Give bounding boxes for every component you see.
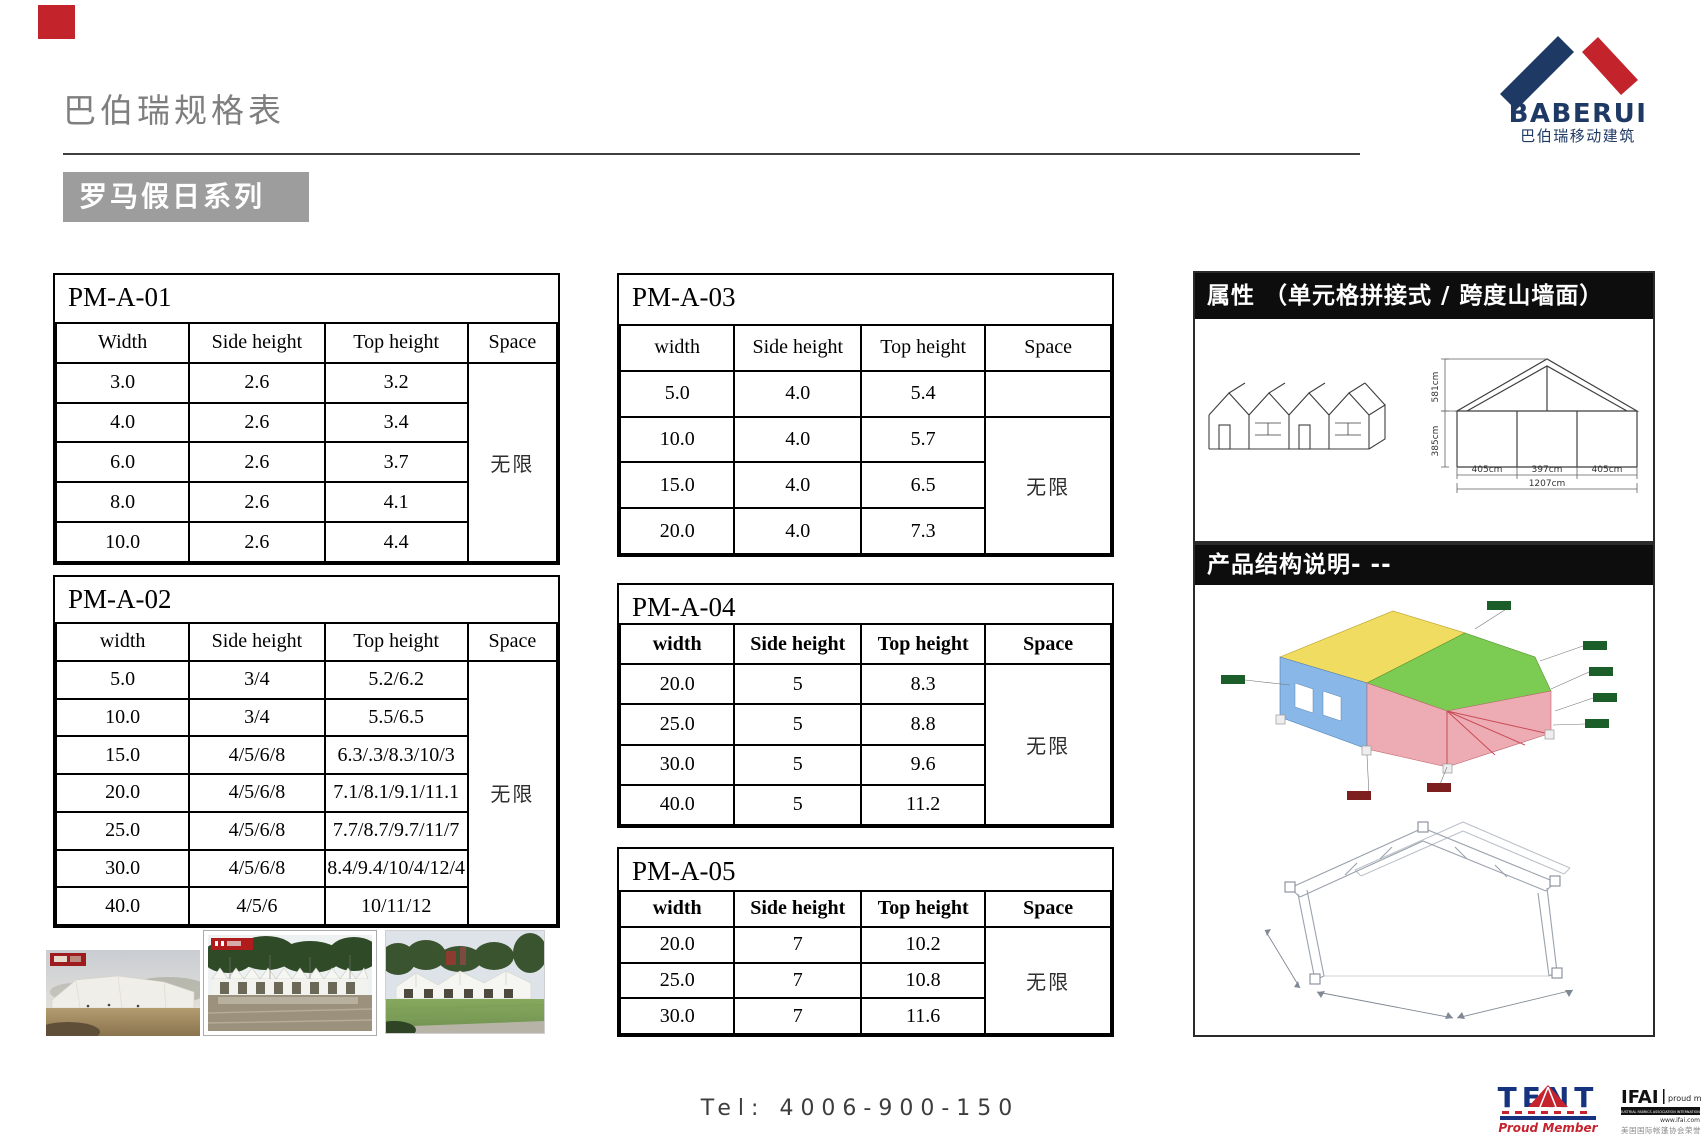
tent-photo-lawn [385,930,545,1034]
spec-cell: 4.0 [56,403,189,443]
dim-bay3: 405cm [1592,465,1623,475]
attributes-panel: 属性 （单元格拼接式 / 跨度山墙面） [1193,271,1655,543]
tent-photo-row [203,930,377,1036]
red-accent-square [38,5,75,39]
column-header: Space [985,624,1111,664]
ifai-bar-text: INDUSTRIAL FABRICS ASSOCIATION INTERNATI… [1620,1110,1701,1114]
column-header: Side height [189,323,324,363]
spec-cell: 11.6 [861,998,985,1034]
spec-cell: 20.0 [620,508,734,554]
spec-cell: 25.0 [620,704,734,744]
spec-cell: 4/5/6/8 [189,774,324,812]
space-cell: 无限 [985,927,1111,1034]
column-header: Top height [861,624,985,664]
column-header: Top height [325,623,468,661]
tent-structure-diagram [1195,585,1653,1035]
spec-table-pm-a-03: PM-A-03widthSide heightTop heightSpace5.… [617,273,1114,557]
column-header: Space [985,325,1111,371]
column-header: width [56,623,189,661]
structure-panel-diagrams [1195,585,1653,1035]
spec-cell: 5 [734,664,861,704]
column-header: Top height [861,325,985,371]
dim-eave-height: 385cm [1431,426,1441,457]
column-header: Top height [325,323,468,363]
ifai-cn-text: 美国国际帐篷协会荣誉会员 [1621,1125,1701,1135]
space-cell: 无限 [468,661,557,925]
table-id: PM-A-02 [55,577,558,622]
space-cell: 无限 [985,664,1111,825]
spec-cell: 4.0 [734,417,861,463]
spec-cell: 4/5/6/8 [189,812,324,850]
space-cell: 无限 [985,417,1111,554]
spec-cell: 2.6 [189,522,324,562]
spec-cell: 8.3 [861,664,985,704]
spec-cell: 4/5/6/8 [189,736,324,774]
attributes-panel-title: 属性 （单元格拼接式 / 跨度山墙面） [1195,273,1653,319]
spec-cell: 3.7 [325,442,468,482]
space-cell: 无限 [468,363,557,562]
table-row: 20.0710.2无限 [620,927,1111,963]
spec-cell: 8.0 [56,482,189,522]
spec-cell: 2.6 [189,403,324,443]
spec-cell: 2.6 [189,442,324,482]
spec-cell: 9.6 [861,745,985,785]
column-header: Top height [861,891,985,927]
spec-cell: 25.0 [620,963,734,999]
column-header: Space [468,323,557,363]
brand-name: BABERUI [1509,99,1648,129]
column-header: Space [468,623,557,661]
spec-cell: 2.6 [189,482,324,522]
dim-total-span: 1207cm [1529,479,1566,489]
column-header: Side height [734,624,861,664]
space-cell-empty [985,371,1111,417]
spec-cell: 25.0 [56,812,189,850]
spec-cell: 15.0 [620,462,734,508]
spec-cell: 40.0 [620,785,734,825]
spec-cell: 7 [734,998,861,1034]
page-title: 巴伯瑞规格表 [63,84,285,132]
spec-cell: 30.0 [620,745,734,785]
spec-cell: 4.0 [734,462,861,508]
spec-cell: 10.0 [56,699,189,737]
spec-cell: 10.8 [861,963,985,999]
spec-cell: 5.7 [861,417,985,463]
ifai-site: www.ifai.com [1660,1117,1700,1124]
baberui-logo: BABERUI 巴伯瑞移动建筑 [1492,8,1664,144]
spec-table-pm-a-04: PM-A-04widthSide heightTop heightSpace20… [617,583,1114,828]
table-id: PM-A-03 [619,275,1112,324]
spec-cell: 5.4 [861,371,985,417]
spec-cell: 5.5/6.5 [325,699,468,737]
column-header: width [620,325,734,371]
column-header: Side height [734,891,861,927]
spec-cell: 4.0 [734,371,861,417]
spec-cell: 20.0 [56,774,189,812]
spec-cell: 20.0 [620,927,734,963]
dim-ridge-height: 581cm [1431,372,1441,403]
spec-table-pm-a-05: PM-A-05widthSide heightTop heightSpace20… [617,847,1114,1037]
spec-cell: 30.0 [620,998,734,1034]
column-header: Side height [189,623,324,661]
column-header: Space [985,891,1111,927]
dim-bay1: 405cm [1472,465,1503,475]
ifai-tagline: proud member [1668,1094,1701,1103]
table-row: 10.04.05.7无限 [620,417,1111,463]
spec-cell: 6.5 [861,462,985,508]
spec-cell: 6.0 [56,442,189,482]
table-row: 5.03/45.2/6.2无限 [56,661,557,699]
spec-cell: 4/5/6/8 [189,850,324,888]
attributes-panel-diagrams: 581cm 385cm 405cm 397cm 405cm 1207cm [1195,319,1653,541]
spec-cell: 4/5/6 [189,887,324,925]
spec-cell: 11.2 [861,785,985,825]
spec-cell: 4.1 [325,482,468,522]
spec-cell: 10.0 [56,522,189,562]
structure-panel-title: 产品结构说明- -- [1195,545,1653,585]
column-header: width [620,624,734,664]
spec-cell: 3.2 [325,363,468,403]
spec-cell: 10/11/12 [325,887,468,925]
spec-cell: 5.2/6.2 [325,661,468,699]
table-id: PM-A-01 [55,275,558,322]
spec-table-pm-a-01: PM-A-01WidthSide heightTop heightSpace3.… [53,273,560,565]
spec-cell: 3.4 [325,403,468,443]
spec-cell: 7.3 [861,508,985,554]
roof-icon: BABERUI 巴伯瑞移动建筑 [1492,8,1664,144]
spec-cell: 5 [734,745,861,785]
table-row: 5.04.05.4 [620,371,1111,417]
tent-proud-member: Proud Member [1498,1121,1598,1135]
spec-cell: 40.0 [56,887,189,925]
spec-cell: 3.0 [56,363,189,403]
spec-cell: 4.4 [325,522,468,562]
dim-bay2: 397cm [1532,465,1563,475]
title-divider [63,153,1360,155]
spec-cell: 7.1/8.1/9.1/11.1 [325,774,468,812]
spec-cell: 3/4 [189,699,324,737]
brand-name-cn: 巴伯瑞移动建筑 [1520,127,1636,144]
ifai-member-logo: IFAI proud member INDUSTRIAL FABRICS ASS… [1620,1086,1701,1136]
table-id: PM-A-04 [619,585,1112,623]
spec-cell: 7 [734,963,861,999]
spec-cell: 5 [734,704,861,744]
column-header: width [620,891,734,927]
tent-photo-hazy [46,950,200,1036]
spec-cell: 20.0 [620,664,734,704]
spec-cell: 8.4/9.4/10/4/12/4 [325,850,468,888]
column-header: Side height [734,325,861,371]
spec-cell: 5 [734,785,861,825]
table-id: PM-A-05 [619,849,1112,890]
spec-cell: 7 [734,927,861,963]
spec-cell: 2.6 [189,363,324,403]
spec-cell: 10.0 [620,417,734,463]
telephone: Tel: 4006-900-150 [640,1096,1080,1121]
series-badge: 罗马假日系列 [63,172,309,222]
structure-panel: 产品结构说明- -- [1193,543,1655,1037]
column-header: Width [56,323,189,363]
spec-cell: 3/4 [189,661,324,699]
spec-cell: 30.0 [56,850,189,888]
ifai-logo-text: IFAI [1621,1087,1659,1108]
tent-wireframe-diagrams: 581cm 385cm 405cm 397cm 405cm 1207cm [1195,319,1653,541]
spec-cell: 5.0 [620,371,734,417]
spec-cell: 8.8 [861,704,985,744]
table-row: 3.02.63.2无限 [56,363,557,403]
tent-member-logo: TENT Proud Member [1484,1083,1612,1135]
spec-cell: 5.0 [56,661,189,699]
spec-cell: 15.0 [56,736,189,774]
spec-cell: 4.0 [734,508,861,554]
spec-sheet-page: 巴伯瑞规格表 罗马假日系列 BABERUI 巴伯瑞移动建筑 PM-A-01Wid… [0,0,1701,1136]
table-row: 20.058.3无限 [620,664,1111,704]
spec-cell: 10.2 [861,927,985,963]
spec-cell: 7.7/8.7/9.7/11/7 [325,812,468,850]
spec-table-pm-a-02: PM-A-02widthSide heightTop heightSpace5.… [53,575,560,928]
spec-cell: 6.3/.3/8.3/10/3 [325,736,468,774]
